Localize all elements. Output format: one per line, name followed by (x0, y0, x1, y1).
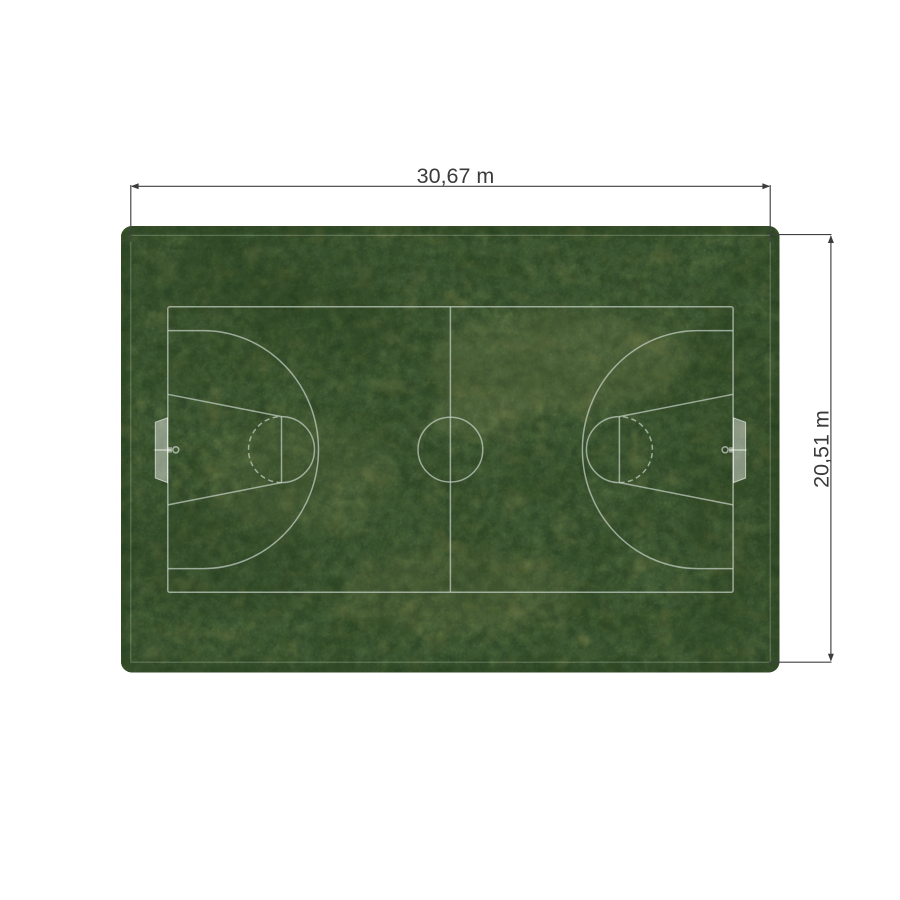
svg-text:30,67 m: 30,67 m (417, 164, 495, 188)
svg-text:20,51 m: 20,51 m (810, 410, 834, 488)
